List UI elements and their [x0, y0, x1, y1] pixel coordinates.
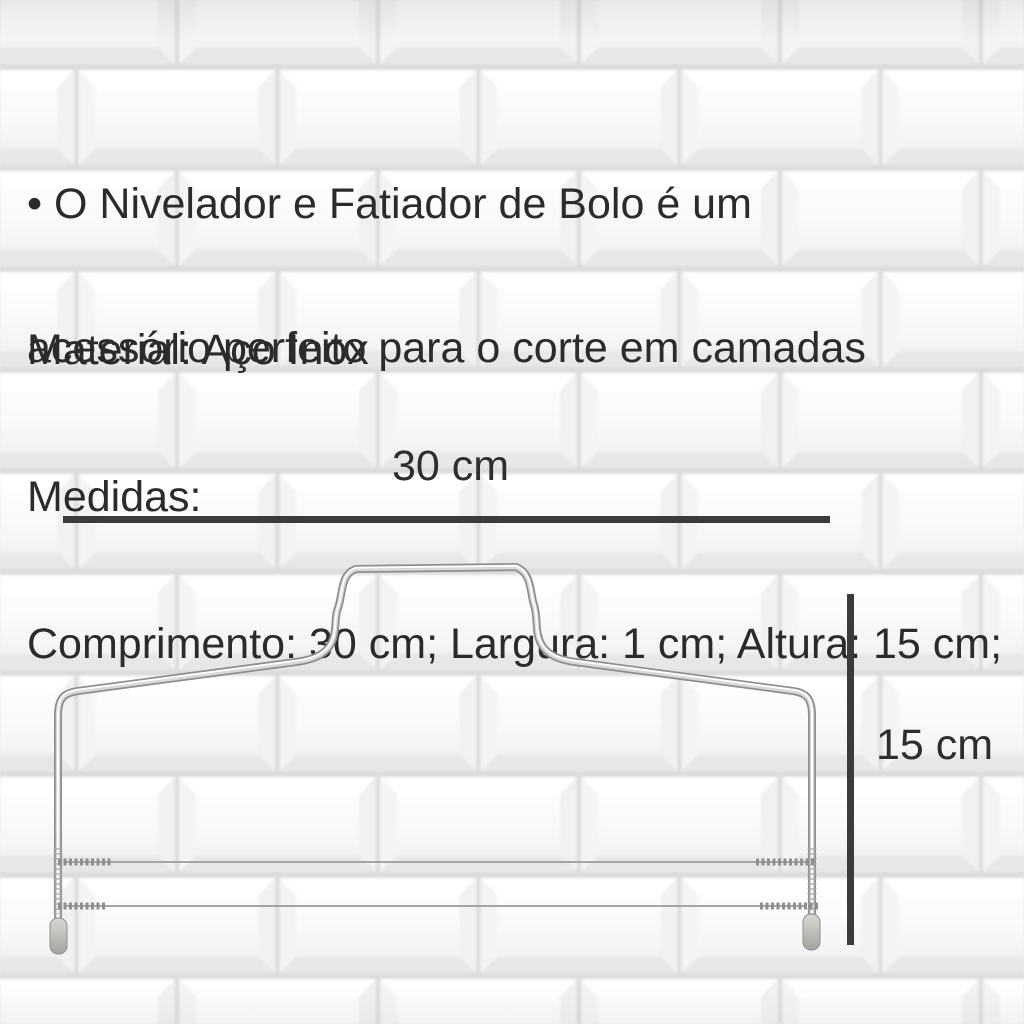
- leveler-cutting-wires: [58, 862, 820, 906]
- leveler-frame-wire: [58, 566, 812, 946]
- leveler-leg-tips: [50, 914, 820, 954]
- product-spec-image: • O Nivelador e Fatiador de Bolo é um ac…: [0, 0, 1024, 1024]
- height-dimension-label: 15 cm: [876, 721, 993, 770]
- cake-leveler-illustration: [0, 0, 1024, 1024]
- height-dimension-line: [847, 594, 854, 945]
